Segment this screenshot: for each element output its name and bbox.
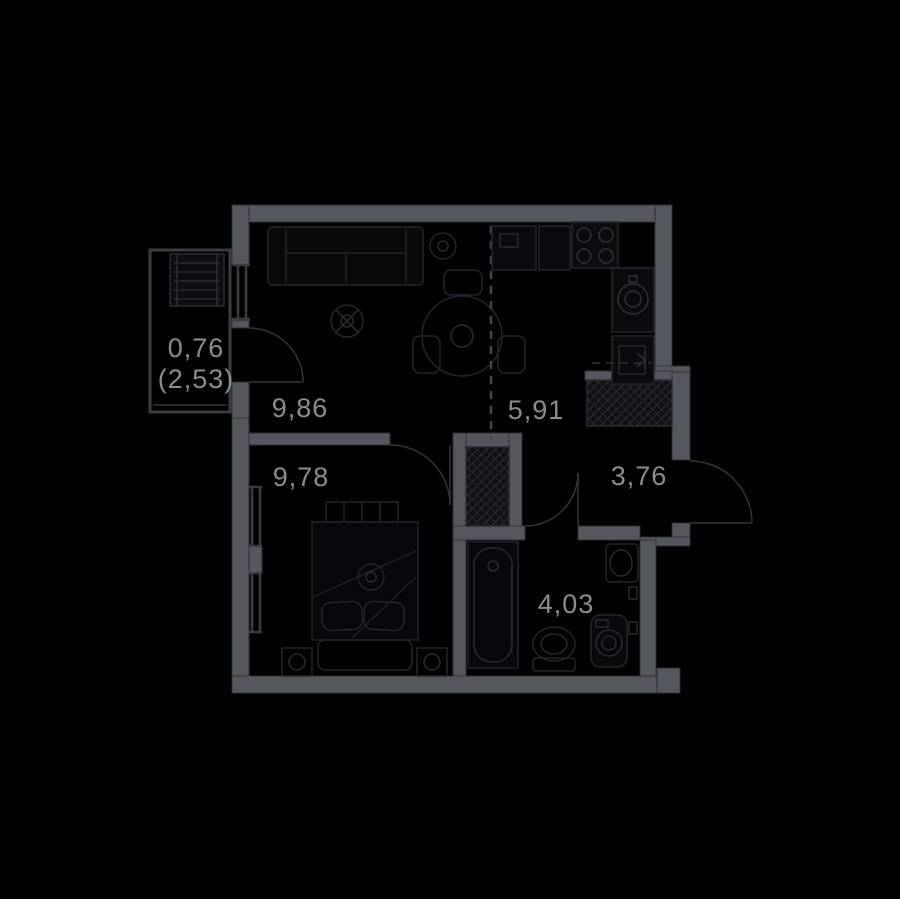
- loggia-door: [249, 328, 303, 382]
- stove-icon: [572, 222, 618, 268]
- label-bathroom-area: 4,03: [538, 589, 595, 619]
- wall-duct-right: [509, 433, 522, 535]
- sofa: [268, 227, 423, 285]
- window-bedroom-2: [249, 573, 262, 632]
- bed: [312, 502, 418, 670]
- label-bedroom-area: 9,78: [273, 462, 330, 492]
- wall-window-pier: [249, 546, 262, 573]
- side-table-plant: [430, 233, 456, 259]
- bathroom-door-arc: [525, 473, 578, 526]
- wall-left-below-door: [232, 382, 249, 418]
- wall-living-bedroom: [249, 433, 390, 445]
- wall-bedroom-bath: [453, 433, 466, 676]
- wall-bottom-right-ext: [657, 668, 680, 693]
- chair-top: [444, 270, 482, 295]
- bedroom-door: [390, 445, 450, 505]
- window-living-loggia: [233, 265, 250, 320]
- label-loggia-area-note: (2,53): [158, 364, 235, 394]
- dining-table: [413, 270, 525, 376]
- wall-bath-top-left: [453, 526, 525, 540]
- bathroom-sink-icon: [606, 544, 638, 582]
- wall-bath-right: [640, 540, 656, 676]
- headboard: [318, 640, 412, 670]
- living-zone-furniture: [268, 227, 525, 376]
- bed-frame: [312, 522, 418, 640]
- wall-right-mid: [672, 372, 690, 460]
- bed-bench: [326, 502, 398, 522]
- entrance-door: [690, 461, 752, 523]
- toilet-icon: [533, 627, 575, 671]
- duct-shaft: [466, 447, 509, 526]
- bathtub: [468, 542, 518, 668]
- wall-bottom: [232, 676, 657, 693]
- floor-plan-svg: 0,76 (2,53) 9,86 5,91 9,78 3,76 4,03: [0, 0, 900, 899]
- loggia-door-arc: [249, 328, 303, 382]
- nightstand-right: [417, 648, 447, 676]
- washing-machine-icon: [591, 615, 627, 667]
- label-hallway-area: 3,76: [611, 461, 668, 491]
- nightstand-left: [282, 648, 312, 676]
- wall-left-lower: [232, 418, 249, 693]
- floor-plan-canvas: 0,76 (2,53) 9,86 5,91 9,78 3,76 4,03: [0, 0, 900, 899]
- ceiling-light-icon: [331, 305, 363, 337]
- bedroom-door-arc: [390, 445, 450, 505]
- window-bedroom-1: [249, 487, 262, 546]
- label-kitchen-zone-area: 5,91: [508, 395, 565, 425]
- entrance-door-arc: [690, 461, 752, 523]
- bathroom-door: [525, 473, 578, 526]
- kitchen-cabinet-1: [492, 226, 536, 270]
- hallway-wardrobe: [587, 380, 672, 426]
- wall-niche-1: [629, 587, 637, 599]
- wall-right-upper: [655, 205, 672, 372]
- drying-rack: [170, 254, 224, 306]
- wall-bath-top-right: [578, 526, 640, 540]
- wall-left-upper: [232, 205, 249, 265]
- dishwasher-icon: [612, 336, 654, 384]
- wall-niche-2: [629, 622, 637, 634]
- label-kitchen-living-area: 9,86: [272, 393, 329, 423]
- wall-top: [232, 205, 672, 222]
- kitchen-cabinet-2: [539, 226, 570, 270]
- label-loggia-area: 0,76: [168, 333, 225, 363]
- kitchen-sink-icon: [612, 268, 654, 332]
- bedroom-furniture: [282, 502, 447, 676]
